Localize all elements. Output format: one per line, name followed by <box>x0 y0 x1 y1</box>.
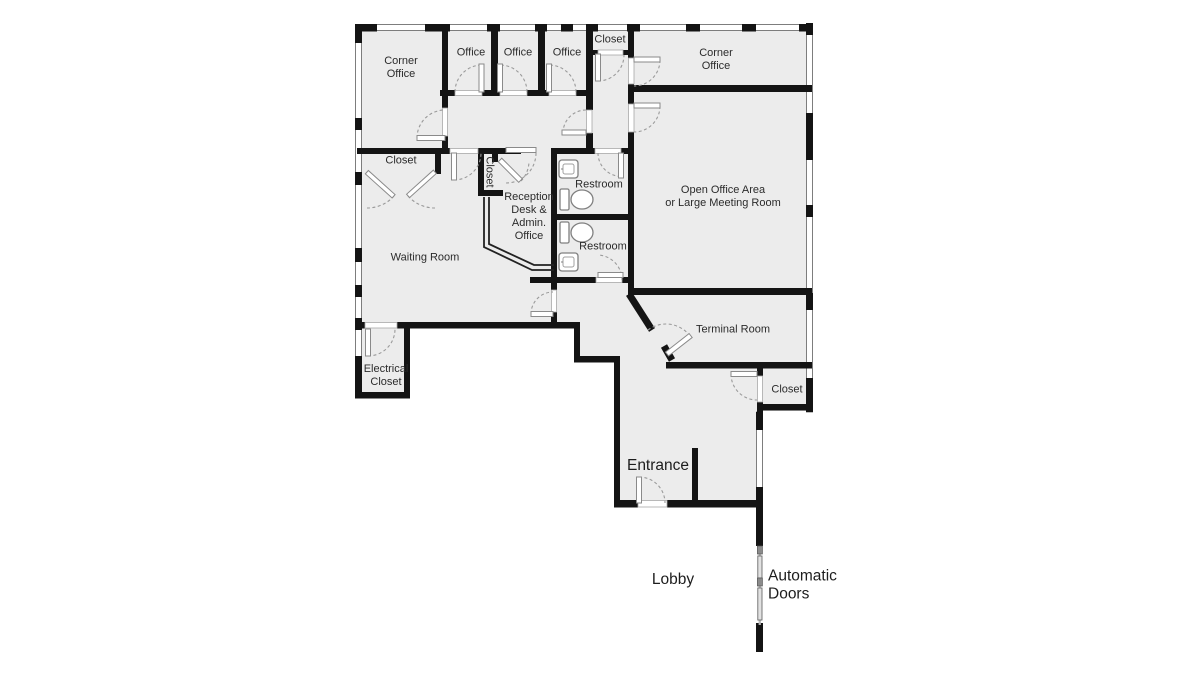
sink-icon <box>559 160 578 178</box>
room-label-reception: Reception Desk & Admin. Office <box>504 191 554 243</box>
room-label-restroom-2: Restroom <box>579 241 627 254</box>
room-label-office-3: Office <box>553 47 582 60</box>
door-restroom-1-leaf <box>619 153 624 178</box>
room-label-waiting-room: Waiting Room <box>391 252 460 265</box>
door-reception-leaf <box>506 148 536 153</box>
room-label-corner-office-tl: Corner Office <box>384 55 418 81</box>
room-label-open-office: Open Office Area or Large Meeting Room <box>665 184 781 210</box>
door-closet-top-leaf <box>596 54 601 81</box>
door-entrance-leaf <box>637 477 642 503</box>
room-label-closet-mid: Closet <box>483 156 496 187</box>
floorplan-drawing <box>0 0 1200 675</box>
door-closet-right-leaf <box>731 372 757 377</box>
door-office-3-leaf <box>547 64 552 92</box>
sink-icon <box>559 253 578 271</box>
floor-area <box>357 25 812 505</box>
window-wall-left <box>356 25 362 358</box>
door-office-2-leaf <box>498 64 503 92</box>
room-label-entrance: Entrance <box>627 457 689 475</box>
door-vestibule-leaf <box>562 130 586 135</box>
room-label-corner-office-tr: Corner Office <box>699 47 733 73</box>
room-label-restroom-1: Restroom <box>575 179 623 192</box>
floorplan-page: Corner Office Office Office Office Close… <box>0 0 1200 675</box>
room-label-closet-top: Closet <box>594 34 625 47</box>
door-electrical-closet-leaf <box>366 329 371 356</box>
door-office-1-leaf <box>479 64 484 92</box>
door-waiting-room-leaf <box>452 153 457 180</box>
toilet-icon <box>560 189 593 210</box>
room-label-lobby: Lobby <box>652 571 694 589</box>
door-corner-office-tl-leaf <box>417 136 445 141</box>
door-hallway-leaf <box>531 312 553 317</box>
room-label-closet-left: Closet <box>385 155 416 168</box>
window-wall-right <box>807 25 813 412</box>
room-label-terminal-room: Terminal Room <box>696 324 770 337</box>
door-restroom-2-leaf <box>598 273 623 278</box>
door-open-office-leaf <box>634 103 660 108</box>
room-label-electrical-closet: Electrical Closet <box>364 363 409 389</box>
door-corner-office-tr-leaf <box>634 57 660 62</box>
room-label-automatic-doors: Automatic Doors <box>768 568 837 605</box>
room-label-office-1: Office <box>457 47 486 60</box>
room-label-office-2: Office <box>504 47 533 60</box>
automatic-doors-icon <box>757 546 762 625</box>
room-label-closet-right: Closet <box>771 384 802 397</box>
